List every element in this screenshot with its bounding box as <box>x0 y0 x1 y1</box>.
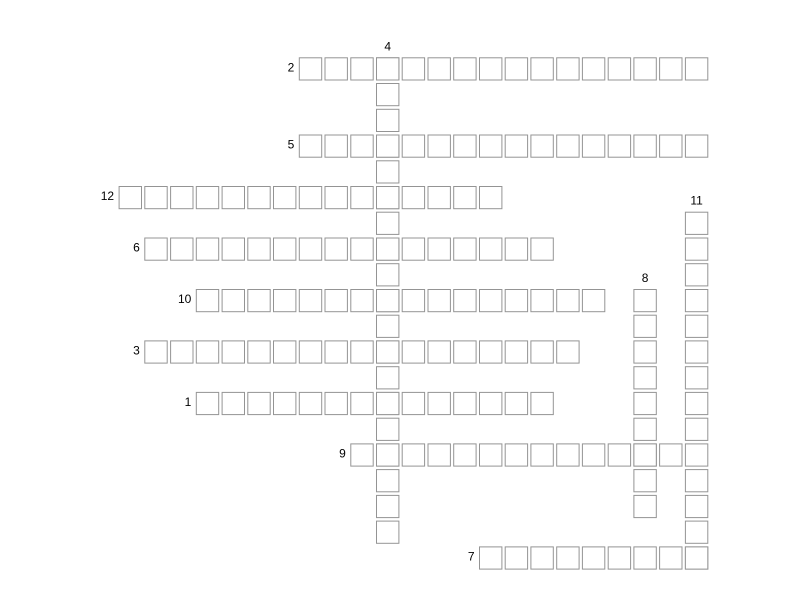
svg-text:7: 7 <box>468 549 475 563</box>
svg-text:11: 11 <box>690 194 703 208</box>
svg-text:8: 8 <box>642 271 649 285</box>
svg-text:5: 5 <box>288 138 295 152</box>
svg-text:3: 3 <box>133 343 140 357</box>
svg-text:12: 12 <box>101 189 115 203</box>
svg-text:4: 4 <box>384 39 391 53</box>
svg-text:10: 10 <box>178 292 192 306</box>
svg-text:6: 6 <box>133 241 140 255</box>
svg-text:2: 2 <box>288 60 295 74</box>
svg-text:9: 9 <box>339 446 346 460</box>
svg-text:1: 1 <box>185 395 192 409</box>
